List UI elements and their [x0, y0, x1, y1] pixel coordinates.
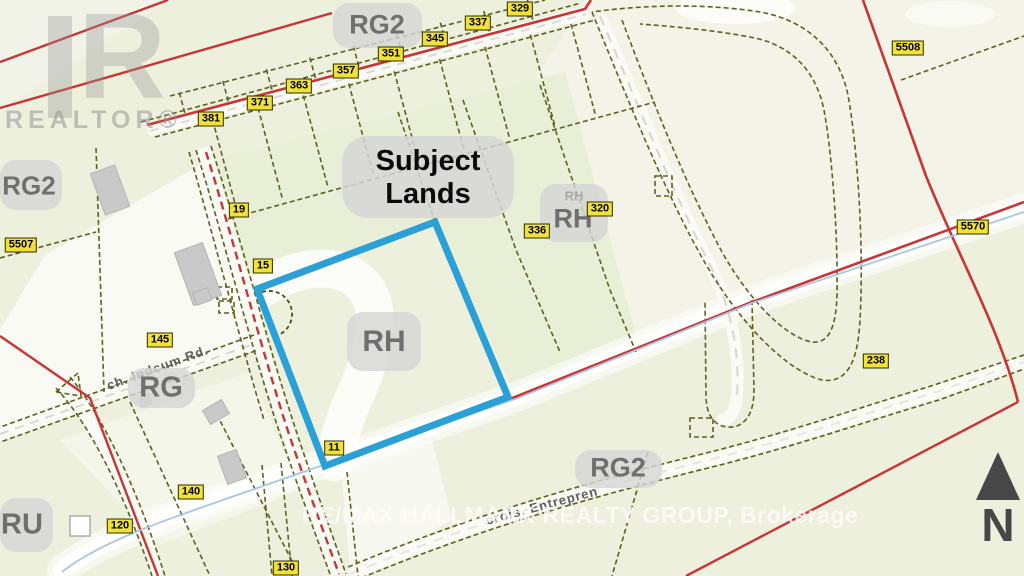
zone-label-rg2-south: RG2: [590, 453, 646, 484]
realtor-logo-bar: [48, 16, 72, 118]
map-canvas: RG2 RG2 RH RH RH RG RU RG2 SubjectLands …: [0, 0, 1024, 576]
address-marker: 329: [507, 2, 533, 17]
address-marker: 381: [198, 112, 224, 127]
brokerage-watermark: RE/MAX HALLMARK REALTY GROUP, Brokerage: [302, 502, 858, 529]
address-marker: 145: [147, 333, 173, 348]
region-cloud: [905, 1, 995, 27]
address-marker: 120: [107, 519, 133, 534]
zone-label-ru: RU: [1, 509, 43, 542]
address-marker: 336: [524, 224, 550, 239]
address-marker: 5570: [957, 220, 989, 235]
address-marker: 5507: [5, 238, 37, 253]
subject-lands-label: SubjectLands: [376, 145, 481, 211]
address-marker: 130: [273, 561, 299, 576]
address-marker: 5508: [892, 41, 924, 56]
realtor-wordmark: REALTOR®: [5, 106, 182, 135]
zone-label-rh-small: RH: [565, 189, 584, 204]
zone-label-rg: RG: [139, 372, 183, 405]
address-marker: 140: [178, 485, 204, 500]
address-marker: 371: [247, 96, 273, 111]
north-arrow-icon: [976, 452, 1020, 500]
address-marker: 11: [324, 441, 344, 456]
address-marker: 337: [465, 16, 491, 31]
address-marker: 19: [229, 203, 249, 218]
subject-line2: Lands: [385, 178, 470, 210]
address-marker: 345: [422, 32, 448, 47]
zone-label-rh-subject: RH: [362, 325, 405, 359]
address-marker: 351: [378, 47, 404, 62]
subject-line1: Subject: [376, 145, 481, 177]
address-marker: 320: [587, 202, 613, 217]
north-arrow-label: N: [972, 500, 1024, 550]
zone-label-rg2-west: RG2: [2, 171, 55, 202]
address-marker: 238: [863, 354, 889, 369]
address-marker: 363: [286, 79, 312, 94]
address-marker: 357: [333, 64, 359, 79]
small-white-parcel: [70, 516, 90, 536]
north-arrow: N: [972, 452, 1024, 550]
zone-label-rg2-north: RG2: [349, 10, 405, 41]
address-marker: 15: [253, 259, 273, 274]
